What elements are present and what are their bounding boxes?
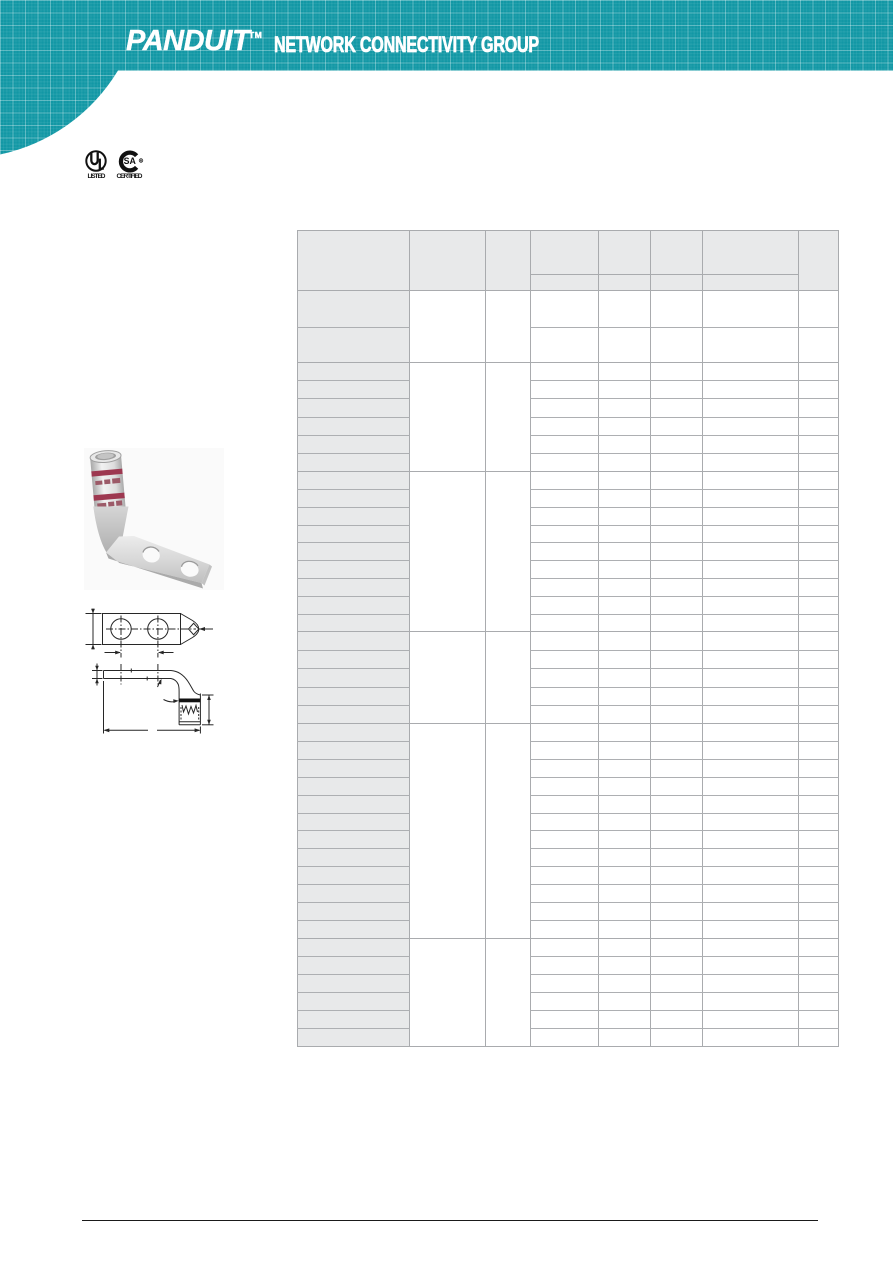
svg-text:SA: SA	[124, 156, 137, 166]
svg-text:LISTED: LISTED	[88, 173, 106, 180]
svg-text:CERTIFIED: CERTIFIED	[117, 173, 143, 180]
